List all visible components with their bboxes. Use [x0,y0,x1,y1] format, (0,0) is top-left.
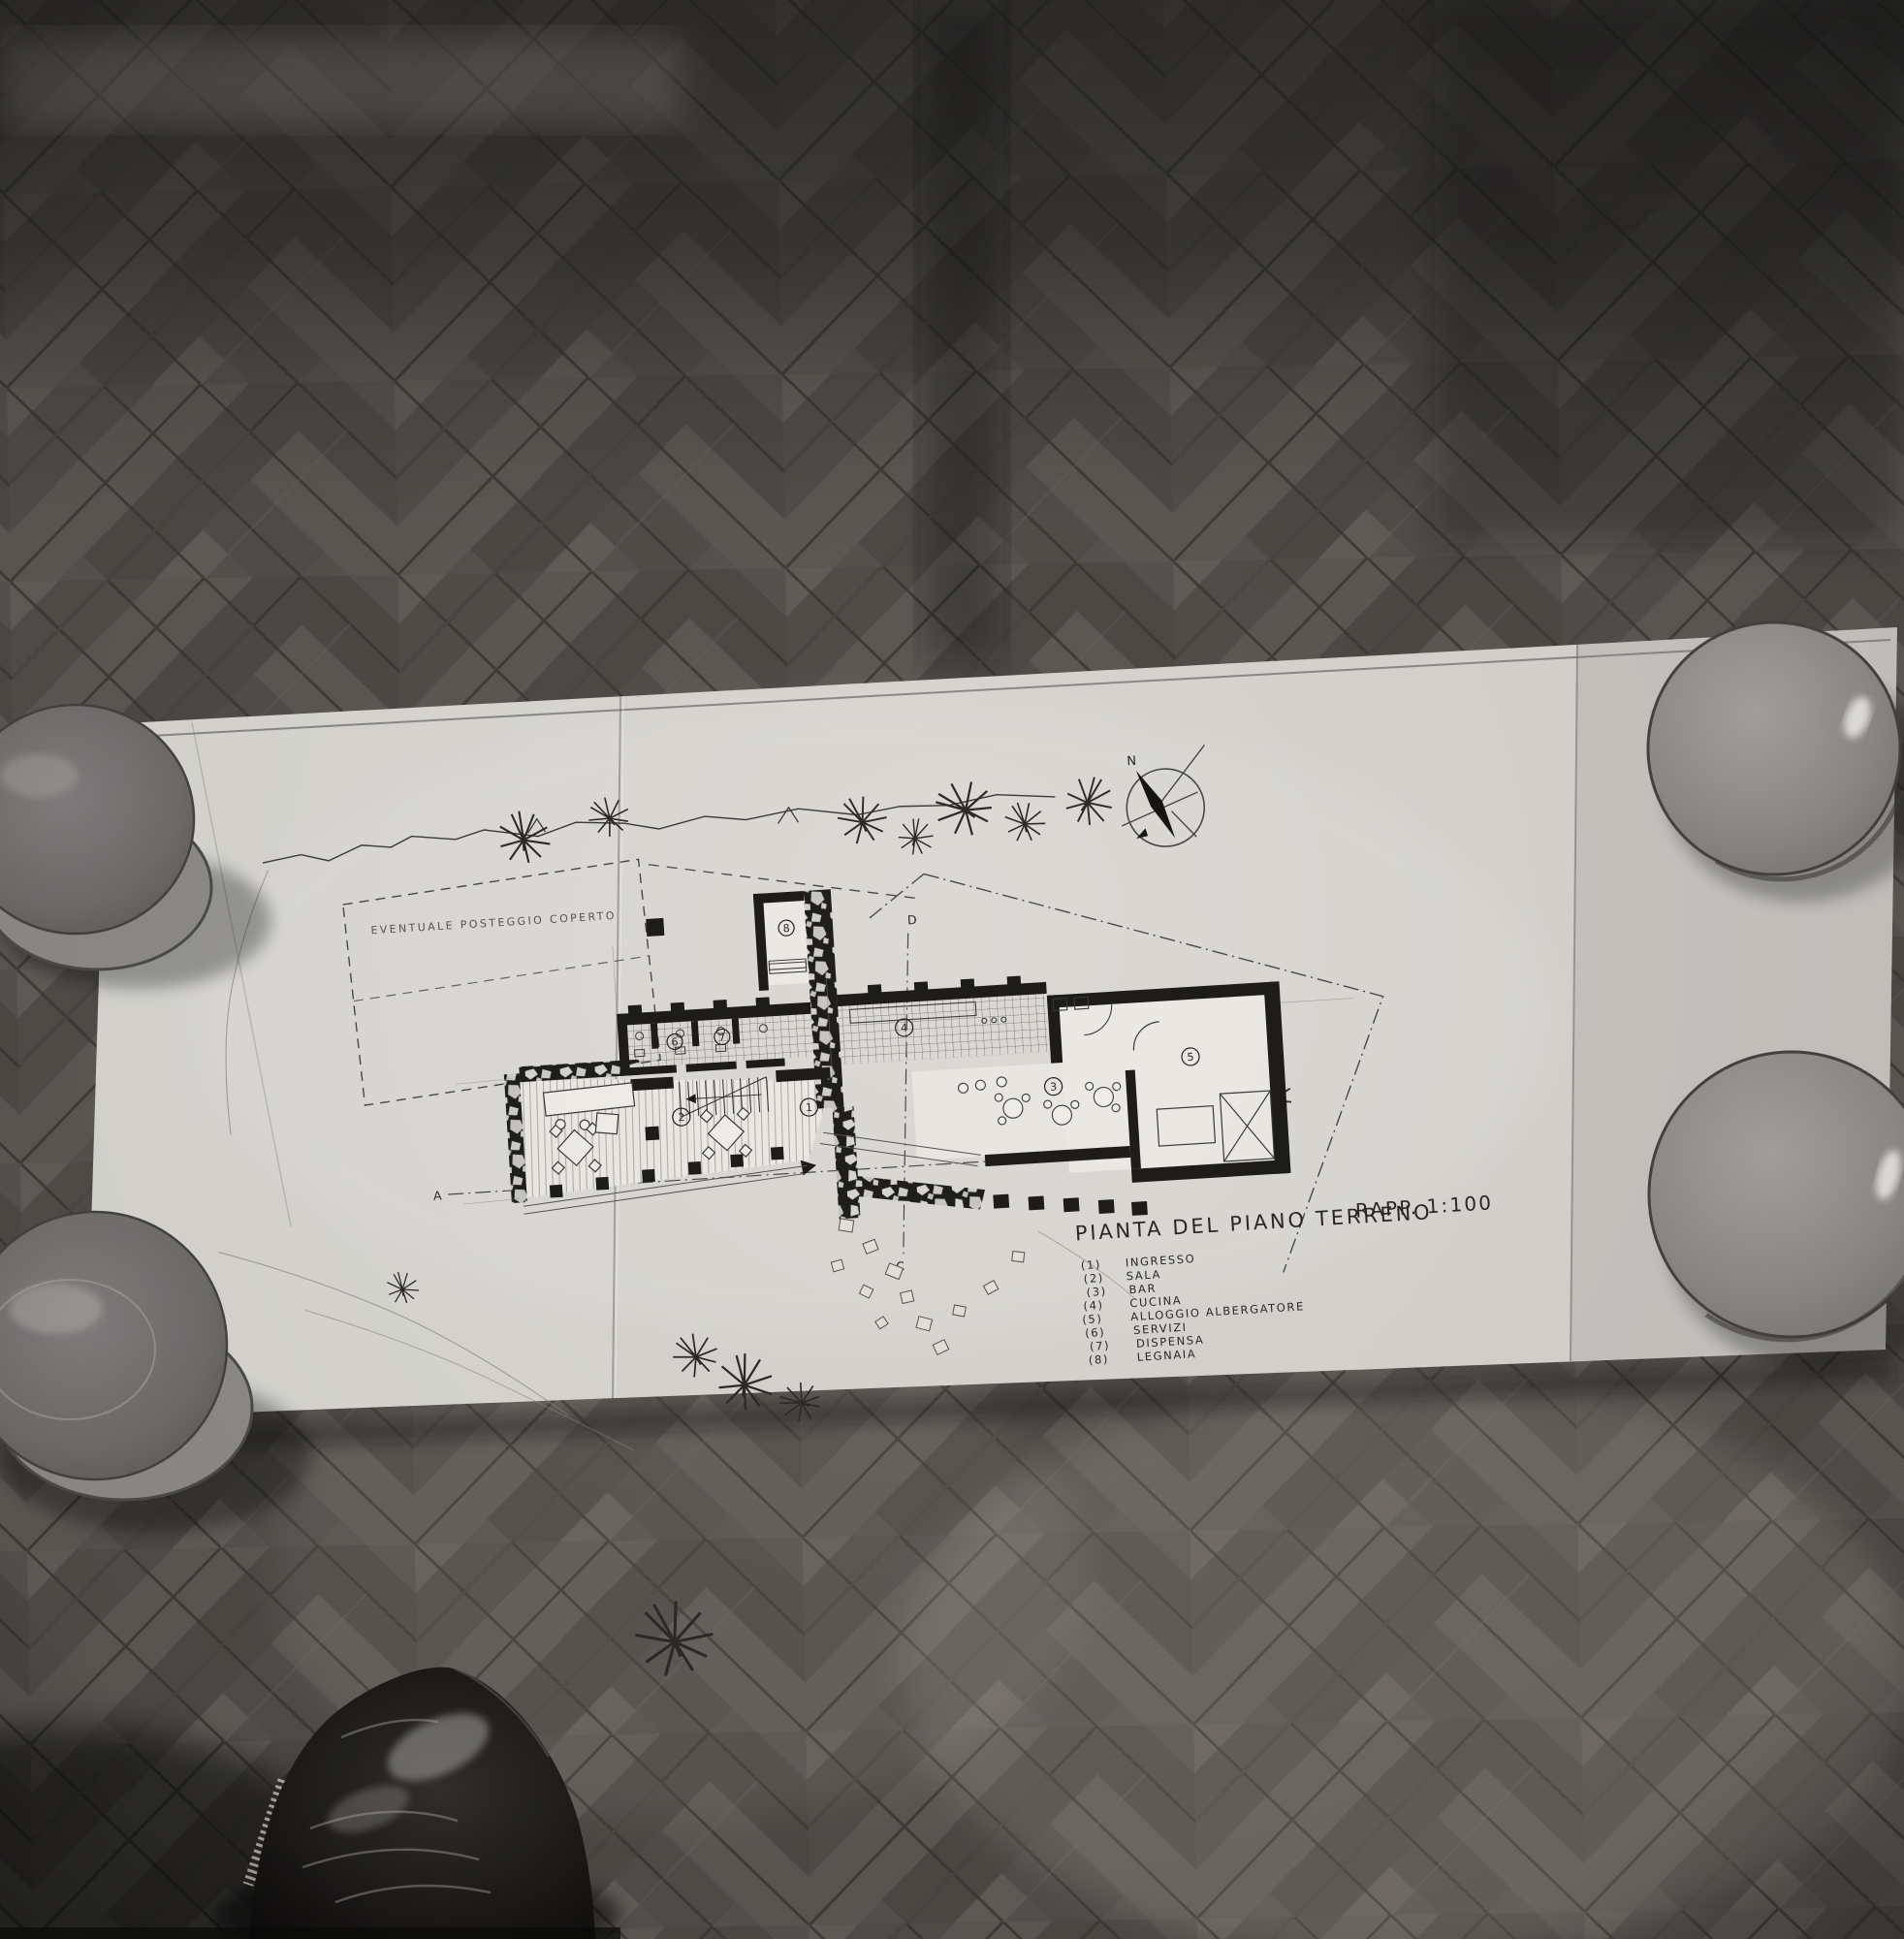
photo-edge-bottom [0,1927,620,1939]
photo-vignette [0,0,1904,1939]
photo-scene: A B C D [0,0,1904,1939]
